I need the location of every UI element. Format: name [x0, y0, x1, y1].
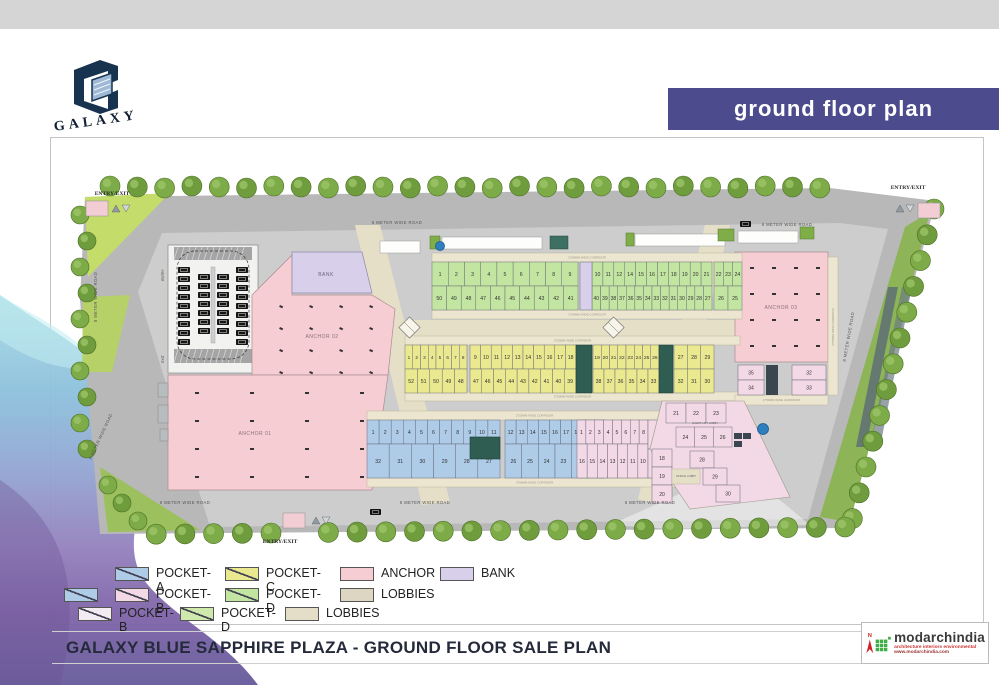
unit-number: 28	[696, 296, 702, 302]
tree-highlight	[376, 180, 384, 188]
tree-highlight	[666, 522, 674, 530]
car-icon	[198, 283, 210, 289]
tree-highlight	[838, 520, 846, 528]
legend-label: POCKET-D	[221, 606, 276, 634]
tree-highlight	[235, 526, 243, 534]
unit-number: 23	[713, 411, 719, 417]
road-label: 6 METER WIDE ROAD	[400, 500, 450, 505]
utility-block	[160, 429, 168, 441]
top-bar	[0, 0, 999, 29]
modarch-grid-icon	[875, 630, 891, 656]
unit-number: 40	[593, 296, 599, 302]
unit-number: 13	[610, 459, 616, 465]
tree	[870, 405, 890, 425]
tree-highlight	[81, 235, 89, 243]
north-label: N	[868, 633, 872, 639]
tree-highlight	[676, 179, 684, 187]
column-dot	[250, 392, 254, 394]
unit-number: 21	[704, 272, 710, 278]
tree-highlight	[116, 497, 124, 505]
tree-highlight	[436, 524, 444, 532]
tree	[904, 276, 924, 296]
tree	[591, 176, 611, 196]
unit-number: 21	[611, 355, 617, 361]
tree	[71, 258, 89, 276]
planter	[626, 233, 634, 246]
unit-number: 29	[712, 474, 718, 480]
tree-highlight	[723, 521, 731, 529]
tree	[99, 476, 117, 494]
legend-label: ANCHOR	[381, 566, 435, 580]
column-dot	[305, 476, 309, 478]
unit-number: 2	[415, 355, 418, 360]
car-icon	[217, 292, 229, 298]
unit-number: 16	[547, 355, 553, 361]
column-dot	[750, 293, 754, 295]
unit-number: 48	[458, 379, 464, 385]
tree-highlight	[321, 181, 329, 189]
unit-number: 44	[508, 379, 514, 385]
unit-number: 36	[618, 379, 624, 385]
unit-number: 12	[504, 355, 510, 361]
unit-number: 39	[602, 296, 608, 302]
unit-number: 22	[619, 355, 625, 361]
tree-highlight	[493, 523, 501, 531]
unit-number: 12	[508, 430, 514, 436]
tree-highlight	[81, 391, 89, 399]
tree-highlight	[879, 382, 887, 390]
legend-label: POCKET-B	[119, 606, 174, 634]
office-lobby-label: OFFICE LOBBY	[676, 474, 696, 478]
unit-number: 28	[699, 457, 705, 463]
unit-number: 7	[633, 430, 636, 436]
unit-number: 15	[536, 355, 542, 361]
tree	[856, 457, 876, 477]
unit-number: 11	[630, 459, 635, 465]
column-dot	[816, 345, 820, 347]
road-label: 6 METER WIDE ROAD	[625, 500, 675, 505]
tree	[537, 177, 557, 197]
tree	[400, 178, 420, 198]
planter	[800, 227, 814, 239]
tree	[849, 483, 869, 503]
unit-number: 49	[446, 379, 452, 385]
legend-swatch	[115, 588, 149, 602]
tree-highlight	[350, 525, 358, 533]
tree-highlight	[522, 523, 530, 531]
tree-highlight	[622, 180, 630, 188]
unit-number: 23	[725, 272, 731, 278]
tree-highlight	[893, 331, 901, 339]
corridor-label: 2750MM WIDE CORRIDOR	[516, 481, 554, 485]
tree	[619, 177, 639, 197]
atrium-block	[659, 345, 673, 393]
unit-number: 42	[532, 379, 538, 385]
car-icon	[198, 292, 210, 298]
unit-number: 24	[682, 435, 688, 441]
tree	[71, 414, 89, 432]
tree-highlight	[913, 253, 921, 261]
unit-number: 29	[688, 296, 694, 302]
tree	[433, 521, 453, 541]
unit-number: 24	[544, 459, 550, 465]
column-dot	[195, 448, 199, 450]
tree-highlight	[185, 179, 193, 187]
credit-url: www.modarchindia.com	[894, 650, 985, 655]
unit-number: 17	[660, 272, 666, 278]
road-label: 6 METER WIDE ROAD	[160, 500, 210, 505]
tree	[634, 519, 654, 539]
planter	[718, 229, 734, 241]
unit-number: 25	[701, 435, 707, 441]
tree-highlight	[74, 261, 82, 269]
unit-number: 3	[423, 355, 426, 360]
car-icon	[236, 294, 248, 300]
tree-highlight	[74, 365, 82, 373]
road-label: 6 METER WIDE ROAD	[372, 220, 422, 225]
unit-number: 5	[504, 272, 507, 278]
unit-number: 46	[485, 379, 491, 385]
unit-number: 23	[627, 355, 633, 361]
anchor-03-label: ANCHOR 03	[764, 305, 797, 311]
tree	[876, 380, 896, 400]
car-icon	[178, 294, 190, 300]
car-icon	[370, 509, 381, 515]
car-icon	[178, 267, 190, 273]
unit-number: 27	[486, 459, 492, 465]
column-dot	[794, 319, 798, 321]
unit-number: 14	[530, 430, 536, 436]
unit-number: 8	[642, 430, 645, 436]
unit-number: 13	[515, 355, 521, 361]
tree	[519, 520, 539, 540]
unit-number: 11	[494, 355, 499, 361]
entry-exit-label: ENTRY/EXIT	[95, 191, 130, 197]
column-dot	[360, 420, 364, 422]
legend-swatch	[440, 567, 474, 581]
tree	[78, 232, 96, 250]
unit-number: 4	[408, 430, 411, 436]
tree-highlight	[758, 179, 766, 187]
car-icon	[178, 276, 190, 282]
footer-title-band: GALAXY BLUE SAPPHIRE PLAZA - GROUND FLOO…	[52, 631, 985, 664]
entry-exit-label: ENTRY/EXIT	[263, 539, 298, 545]
unit-number: 12	[620, 459, 626, 465]
tree	[462, 521, 482, 541]
lift-block	[550, 236, 568, 249]
unit-number: 7	[454, 355, 457, 360]
tree	[78, 336, 96, 354]
tree	[673, 176, 693, 196]
tree-highlight	[540, 180, 548, 188]
lift-block	[734, 433, 742, 439]
banner-title: ground floor plan	[734, 96, 933, 122]
tree-highlight	[637, 522, 645, 530]
tree	[318, 522, 338, 542]
unit-number: 27	[705, 296, 711, 302]
legend-swatch	[225, 588, 259, 602]
unit-number: 19	[594, 355, 600, 361]
tree	[720, 518, 740, 538]
tree-highlight	[809, 520, 817, 528]
tree	[113, 494, 131, 512]
tree	[71, 362, 89, 380]
car-icon	[236, 312, 248, 318]
unit-number: 41	[568, 296, 574, 302]
unit-number: 49	[451, 296, 457, 302]
legend-label: LOBBIES	[381, 587, 435, 601]
brand-logo: GALAXY	[44, 56, 154, 140]
column-dot	[816, 267, 820, 269]
tree-highlight	[872, 408, 880, 416]
unit-number: 9	[568, 272, 571, 278]
unit-number: 36	[628, 296, 634, 302]
column-dot	[794, 267, 798, 269]
unit-number: 20	[603, 355, 609, 361]
car-icon	[740, 221, 751, 227]
unit-number: 31	[397, 459, 403, 465]
tree-highlight	[465, 524, 473, 532]
lift-block	[734, 441, 742, 447]
unit-number: 50	[436, 296, 442, 302]
lobby-strip	[380, 241, 420, 253]
tree-highlight	[102, 479, 110, 487]
unit-number: 37	[619, 296, 625, 302]
parking-median	[211, 267, 215, 343]
unit-number: 25	[527, 459, 533, 465]
unit-number: 30	[725, 491, 731, 497]
column-dot	[750, 345, 754, 347]
unit-number: 5	[439, 355, 442, 360]
legend-label: BANK	[481, 566, 515, 580]
unit-number: 7	[444, 430, 447, 436]
tree-highlight	[551, 523, 559, 531]
unit-number: 44	[524, 296, 530, 302]
tree	[264, 176, 284, 196]
entry-pad	[918, 203, 940, 218]
tree	[482, 178, 502, 198]
tree	[155, 178, 175, 198]
unit-number: 11	[606, 272, 611, 278]
legend-swatch	[340, 567, 374, 581]
tree-highlight	[780, 520, 788, 528]
tree	[129, 512, 147, 530]
anchor-01-label: ANCHOR 01	[238, 431, 271, 437]
unit-number: 28	[464, 459, 470, 465]
unit-number: 17	[557, 355, 563, 361]
tree-highlight	[920, 228, 928, 236]
corridor-label: 2750MM WIDE CORRIDOR	[568, 313, 606, 317]
unit-number: 8	[456, 430, 459, 436]
car-icon	[217, 310, 229, 316]
tree-highlight	[859, 460, 867, 468]
legend-swatch	[225, 567, 259, 581]
tree-highlight	[785, 180, 793, 188]
tree	[491, 521, 511, 541]
tree-highlight	[649, 181, 657, 189]
unit-number: 47	[473, 379, 479, 385]
tree	[577, 520, 597, 540]
floor-plan-banner: ground floor plan	[668, 88, 999, 130]
car-icon	[236, 339, 248, 345]
tree-highlight	[852, 486, 860, 494]
tree-highlight	[403, 181, 411, 189]
unit-number: 26	[510, 459, 516, 465]
unit-number: 25	[644, 355, 650, 361]
car-icon	[236, 330, 248, 336]
tree-highlight	[212, 180, 220, 188]
tree	[376, 522, 396, 542]
tree	[701, 177, 721, 197]
unit-number: 1	[580, 430, 583, 436]
unit-number: 52	[408, 379, 414, 385]
column-dot	[195, 420, 199, 422]
site-plan-svg: ENTRYEXITANCHOR 02ANCHOR 01ANCHOR 03BANK…	[50, 137, 982, 623]
unit-number: 30	[704, 379, 710, 385]
north-arrow	[866, 640, 873, 654]
entry-pad	[283, 513, 305, 528]
tree	[146, 524, 166, 544]
tree	[510, 176, 530, 196]
tree-highlight	[149, 527, 157, 535]
tree	[890, 328, 910, 348]
tree	[883, 354, 903, 374]
tree	[182, 176, 202, 196]
unit-number: 15	[638, 272, 644, 278]
column-dot	[772, 319, 776, 321]
anchor-02-label: ANCHOR 02	[305, 334, 338, 340]
north-arrow-icon: N	[865, 626, 875, 660]
unit-number: 26	[652, 355, 658, 361]
tree-highlight	[239, 181, 247, 189]
unit-number: 19	[659, 474, 665, 480]
car-icon	[217, 283, 229, 289]
unit-number: 3	[598, 430, 601, 436]
unit-number: 37	[607, 379, 613, 385]
corridor-label: 2750MM WIDE CORRIDOR	[568, 256, 606, 260]
tree	[728, 178, 748, 198]
unit-number: 2	[455, 272, 458, 278]
tree-highlight	[866, 434, 874, 442]
car-icon	[178, 285, 190, 291]
tree-highlight	[321, 525, 329, 533]
tree-highlight	[407, 524, 415, 532]
unit-number: 6	[520, 272, 523, 278]
unit-number: 18	[659, 456, 665, 462]
car-icon	[198, 310, 210, 316]
tree	[232, 523, 252, 543]
unit-number: 19	[682, 272, 688, 278]
unit-number: 35	[629, 379, 635, 385]
entry-pad	[86, 201, 108, 216]
column-dot	[305, 420, 309, 422]
car-icon	[178, 339, 190, 345]
tree-highlight	[130, 180, 138, 188]
unit-number: 32	[662, 296, 668, 302]
column-dot	[772, 267, 776, 269]
entry-exit-label: ENTRY/EXIT	[891, 185, 926, 191]
sheet-title: GALAXY BLUE SAPPHIRE PLAZA - GROUND FLOO…	[66, 638, 611, 658]
anchor-01	[168, 375, 388, 490]
utility-block	[158, 383, 168, 397]
tree	[548, 520, 568, 540]
lobby-strip	[442, 237, 542, 249]
tree	[835, 517, 855, 537]
legend-swatch	[115, 567, 149, 581]
unit-number: 14	[599, 459, 605, 465]
unit-number: 16	[552, 430, 558, 436]
tree-highlight	[752, 521, 760, 529]
unit-number: 29	[442, 459, 448, 465]
car-icon	[178, 312, 190, 318]
unit-number: 13	[519, 430, 525, 436]
legend-swatch	[64, 588, 98, 602]
unit-number: 40	[555, 379, 561, 385]
credit-name: modarchindia	[894, 631, 985, 645]
fountain	[758, 424, 769, 435]
tree-highlight	[74, 209, 82, 217]
column-dot	[360, 448, 364, 450]
unit-number: 24	[734, 272, 740, 278]
unit-number: 34	[640, 379, 646, 385]
legend-swatch	[180, 607, 214, 621]
unit-number: 11	[491, 430, 496, 436]
tree-highlight	[900, 305, 908, 313]
tree	[755, 176, 775, 196]
car-icon	[198, 319, 210, 325]
unit-number: 9	[474, 355, 477, 361]
tree	[78, 388, 96, 406]
lobby-strip	[738, 231, 798, 243]
car-icon	[236, 276, 248, 282]
unit-number: 32	[375, 459, 381, 465]
column-dot	[772, 345, 776, 347]
tree-highlight	[267, 179, 275, 187]
unit-number: 18	[568, 355, 574, 361]
utility-block	[158, 405, 168, 423]
credit-box: N modarchindia architecture interiors en…	[861, 622, 989, 664]
column-dot	[750, 319, 754, 321]
tree	[209, 177, 229, 197]
tree	[318, 178, 338, 198]
car-icon	[198, 274, 210, 280]
corridor-label: 2750MM WIDE CORRIDOR	[763, 398, 801, 402]
unit-number: 42	[553, 296, 559, 302]
road-label: 6 METER WIDE ROAD	[762, 222, 812, 227]
tree-highlight	[594, 179, 602, 187]
unit-number: 17	[563, 430, 569, 436]
tree-highlight	[886, 357, 894, 365]
unit-number: 18	[671, 272, 677, 278]
unit-number: 14	[525, 355, 531, 361]
unit-number: 20	[659, 492, 665, 498]
tree-highlight	[349, 179, 357, 187]
unit-number: 27	[678, 355, 684, 361]
unit-number: 48	[466, 296, 472, 302]
unit-number: 41	[544, 379, 550, 385]
tree	[175, 524, 195, 544]
unit-number: 45	[509, 296, 515, 302]
unit-number: 4	[487, 272, 490, 278]
tree-highlight	[132, 515, 140, 523]
car-icon	[217, 319, 229, 325]
unit-number: 5	[420, 430, 423, 436]
unit-number: 29	[704, 355, 710, 361]
credit-text: modarchindia architecture interiors envi…	[894, 631, 985, 655]
tree	[692, 519, 712, 539]
tree-highlight	[294, 180, 302, 188]
tree-highlight	[703, 180, 711, 188]
